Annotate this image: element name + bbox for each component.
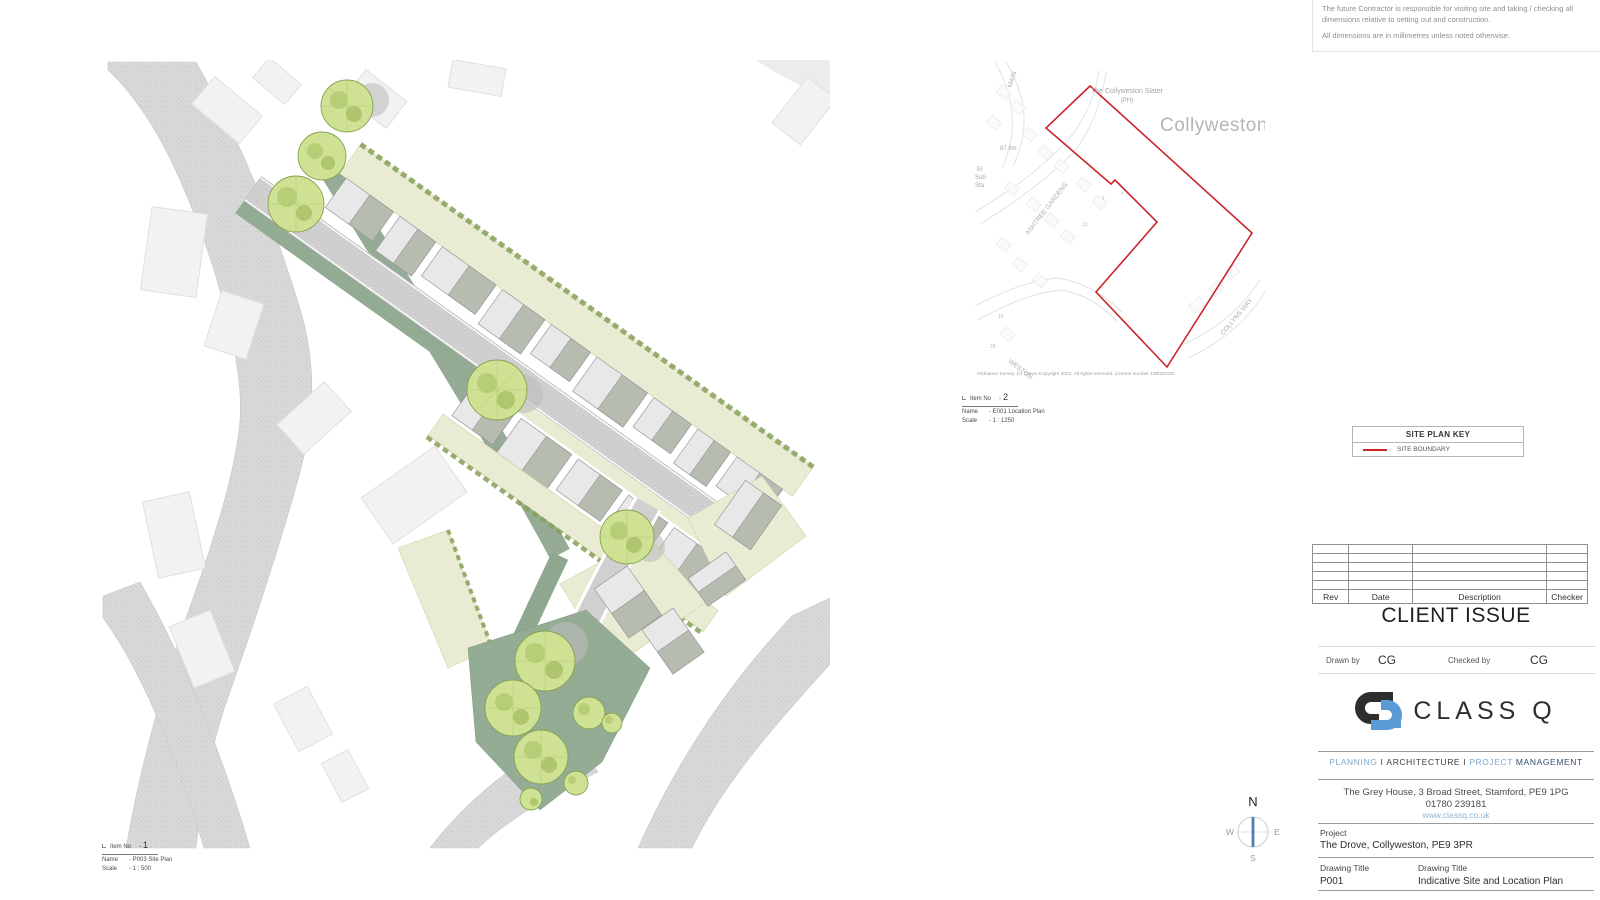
street-weston-label: WESTON (1007, 358, 1034, 381)
rev-header: Rev (1313, 590, 1349, 604)
site-item-label: Item No-1 Name- P003 Site Plan Scale- 1 … (102, 839, 172, 875)
drawing-title-value: Indicative Site and Location Plan (1418, 876, 1563, 887)
plot-number: 4 (1121, 191, 1124, 197)
plot-number: 28 (990, 344, 996, 350)
tree (467, 360, 527, 420)
location-plan-drawing: The Collyweston Slater (PH) Collyweston … (970, 60, 1265, 390)
classq-logo-icon (1355, 690, 1403, 732)
divider (1318, 823, 1594, 824)
drawing-title-label: Drawing Title (1418, 863, 1467, 873)
item-row: Item No-1 (102, 839, 158, 855)
checked-by-label: Checked by (1448, 656, 1526, 665)
drawing-number-value: P001 (1320, 876, 1343, 887)
item-row: Item No-2 (962, 391, 1018, 407)
tree (485, 680, 541, 736)
north-compass: N W E S (1224, 792, 1288, 864)
pub-suffix-label: (PH) (1121, 98, 1133, 104)
tree (268, 176, 324, 232)
location-item-label: Item No-2 Name- E001 Location Plan Scale… (962, 391, 1045, 427)
phone-line: 01780 239181 (1312, 799, 1600, 810)
town-label: Collyweston (1160, 115, 1265, 136)
substation-label: El (977, 167, 982, 173)
compass-needle (1252, 817, 1255, 847)
item-name-row: Name- E001 Location Plan (962, 408, 1045, 417)
revision-header-row: Rev Date Description Checker (1313, 590, 1588, 604)
project-value: The Drove, Collyweston, PE9 3PR (1320, 840, 1473, 851)
compass-west-label: W (1226, 827, 1234, 837)
pub-label: The Collyweston Slater (1091, 88, 1164, 95)
plot-number: 15 (998, 314, 1004, 320)
item-scale-row: Scale- 1 : 500 (102, 865, 172, 874)
revision-row (1313, 572, 1588, 581)
site-boundary-label: SITE BOUNDARY (1397, 446, 1450, 453)
plot-number: 13 (1082, 222, 1088, 228)
tree (298, 132, 346, 180)
drawing-number-label: Drawing Title (1320, 863, 1369, 873)
drawn-by-label: Drawn by (1326, 656, 1378, 665)
spot-height-label: 87.8m (1000, 146, 1017, 152)
compass-north-label: N (1248, 794, 1257, 809)
key-row: SITE BOUNDARY (1353, 443, 1523, 456)
street-main-label: MAIN (1007, 70, 1019, 88)
item-no-label: Item No (970, 396, 991, 402)
item-marker-icon (962, 396, 966, 400)
logo-wordmark: CLASS Q (1413, 697, 1556, 726)
street-collyns-label: COLLYNS WAY (1219, 297, 1254, 337)
checked-by-value: CG (1530, 653, 1548, 667)
issue-status: CLIENT ISSUE (1312, 604, 1600, 628)
revision-row (1313, 581, 1588, 590)
general-note: All dimensions are in millimetres unless… (1322, 31, 1594, 42)
address-line: The Grey House, 3 Broad Street, Stamford… (1312, 787, 1600, 798)
drawing-sheet: Item No-1 Name- P003 Site Plan Scale- 1 … (0, 0, 1600, 900)
site-plan-drawing (100, 60, 830, 850)
revision-row (1313, 563, 1588, 572)
key-title: SITE PLAN KEY (1353, 427, 1523, 443)
general-note: The future Contractor is responsible for… (1322, 4, 1594, 26)
drawn-by-row: Drawn by CG Checked by CG (1318, 646, 1596, 674)
tree (573, 697, 605, 729)
tree (600, 510, 654, 564)
compass-east-label: E (1274, 827, 1280, 837)
divider (1318, 890, 1594, 891)
item-no: 2 (1003, 392, 1008, 402)
item-name-row: Name- P003 Site Plan (102, 856, 172, 865)
checker-header: Checker (1547, 590, 1588, 604)
item-no: 1 (143, 840, 148, 850)
date-header: Date (1349, 590, 1413, 604)
svg-text:Sub: Sub (975, 175, 986, 181)
tree (602, 713, 622, 733)
tree (520, 788, 542, 810)
services-tagline: PLANNINGIARCHITECTUREIPROJECT MANAGEMENT (1312, 757, 1600, 767)
item-marker-icon (102, 844, 106, 848)
revision-row (1313, 554, 1588, 563)
tree (321, 80, 373, 132)
tree (564, 771, 588, 795)
tree (514, 730, 568, 784)
divider (1318, 857, 1594, 858)
svg-text:Sta: Sta (975, 183, 985, 189)
divider (1318, 751, 1594, 752)
compass-south-label: S (1250, 853, 1256, 863)
os-copyright: Ordnance Survey, (c) Crown Copyright 202… (977, 371, 1175, 377)
site-boundary-swatch (1363, 449, 1387, 451)
drawn-by-value: CG (1378, 653, 1448, 667)
item-scale-row: Scale- 1 : 1250 (962, 417, 1045, 426)
revision-row (1313, 545, 1588, 554)
website-link: www.classq.co.uk (1312, 810, 1600, 820)
item-no-label: Item No (110, 844, 131, 850)
project-label: Project (1320, 828, 1346, 838)
classq-logo: CLASS Q (1312, 684, 1600, 738)
site-plan-key: SITE PLAN KEY SITE BOUNDARY (1352, 426, 1524, 457)
revision-table: Rev Date Description Checker (1312, 544, 1588, 604)
divider (1318, 779, 1594, 780)
plot-number: 1 (1102, 196, 1105, 202)
notes-panel: The future Contractor is responsible for… (1312, 0, 1600, 52)
description-header: Description (1413, 590, 1547, 604)
